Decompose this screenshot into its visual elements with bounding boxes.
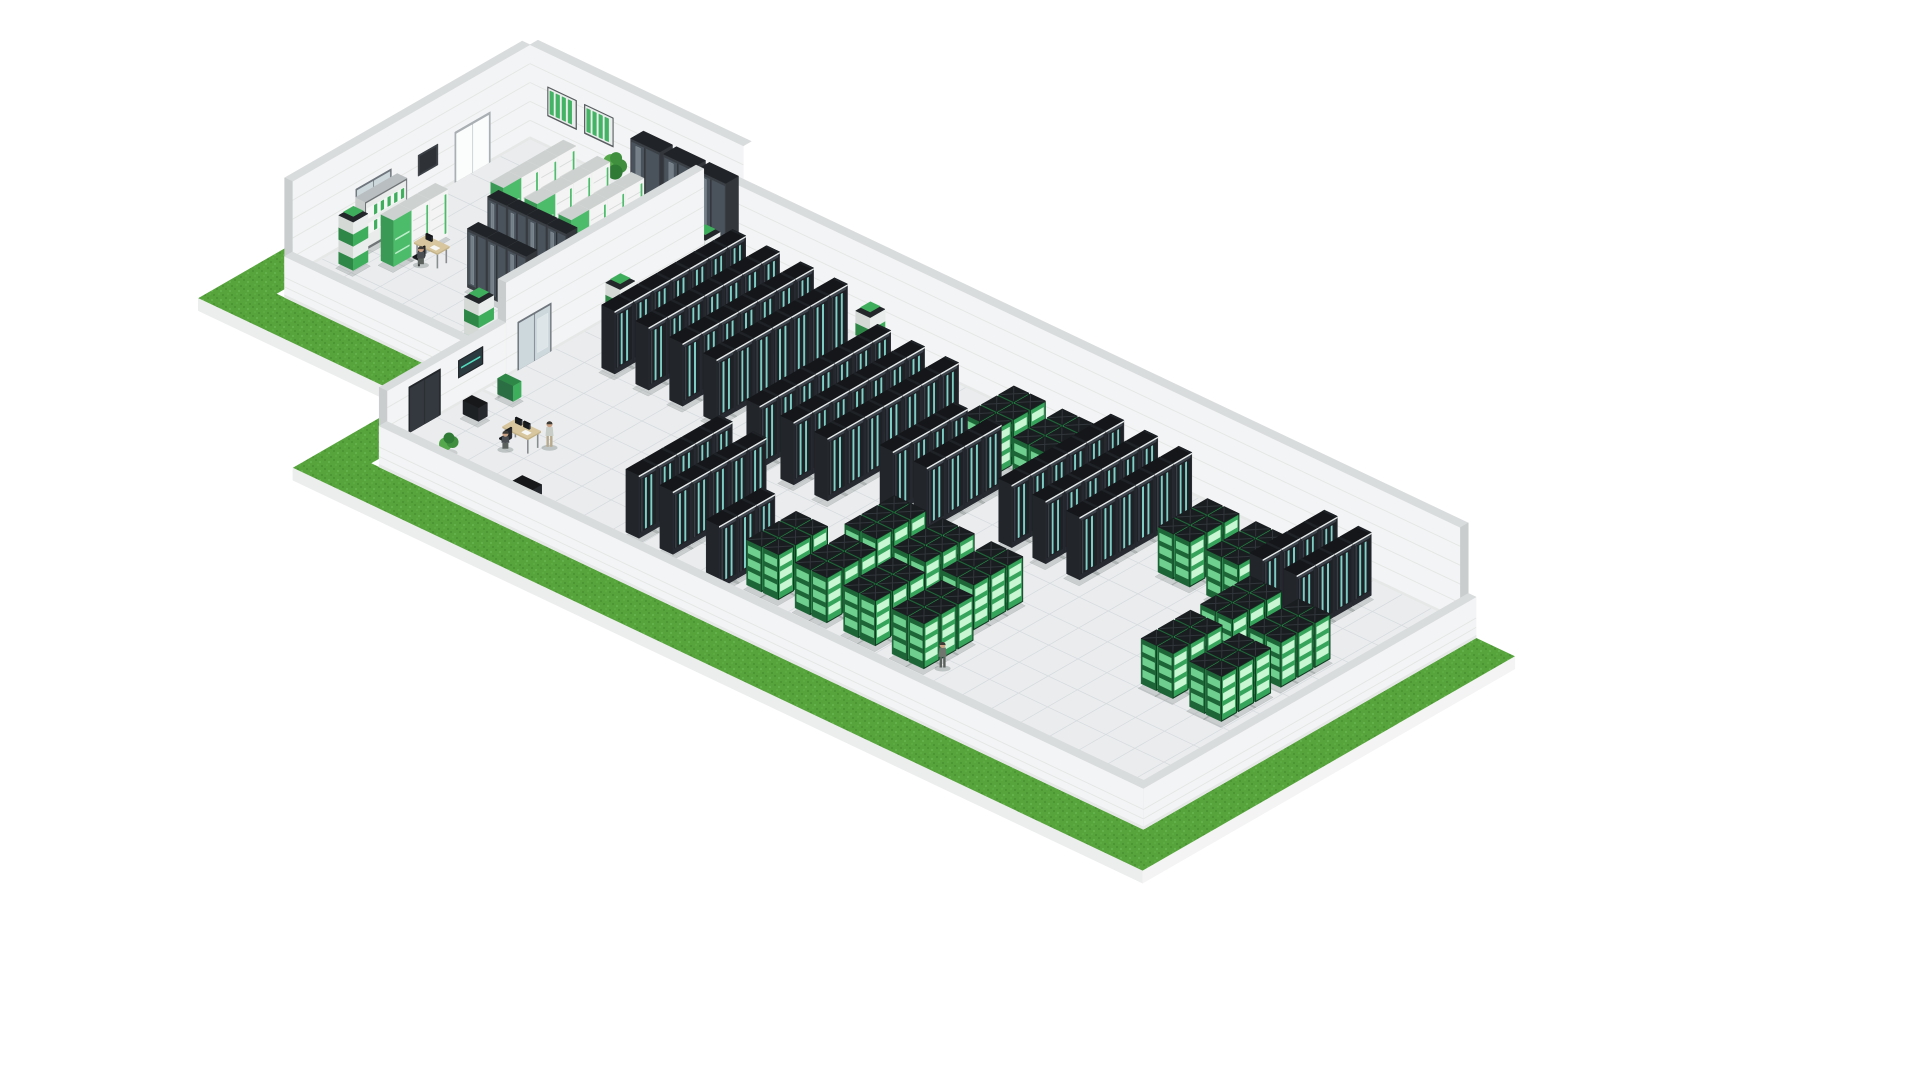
green-battery-cabinet [809, 562, 845, 629]
green-battery-cabinet [1155, 638, 1191, 705]
dark-server-rack [623, 459, 660, 545]
dark-server-rack [633, 311, 670, 397]
dark-server-rack [778, 405, 815, 491]
green-battery-cabinet [760, 539, 796, 606]
dark-server-rack [667, 327, 704, 413]
green-stack-pillar [336, 206, 371, 276]
dark-server-rack [1030, 484, 1067, 570]
green-battery-cabinet [1203, 661, 1239, 728]
dark-server-rack [657, 475, 694, 561]
dark-server-rack [812, 421, 849, 507]
dark-server-rack [599, 294, 636, 380]
dark-server-rack [1064, 500, 1101, 586]
isometric-scene [0, 0, 1920, 1080]
ups-cabinet-green [378, 204, 414, 272]
datacenter-illustration-canvas [0, 0, 1920, 1080]
green-battery-cabinet [1172, 526, 1208, 593]
dark-server-rack [996, 468, 1032, 554]
green-battery-cabinet [906, 608, 942, 675]
green-battery-cabinet [857, 585, 893, 652]
